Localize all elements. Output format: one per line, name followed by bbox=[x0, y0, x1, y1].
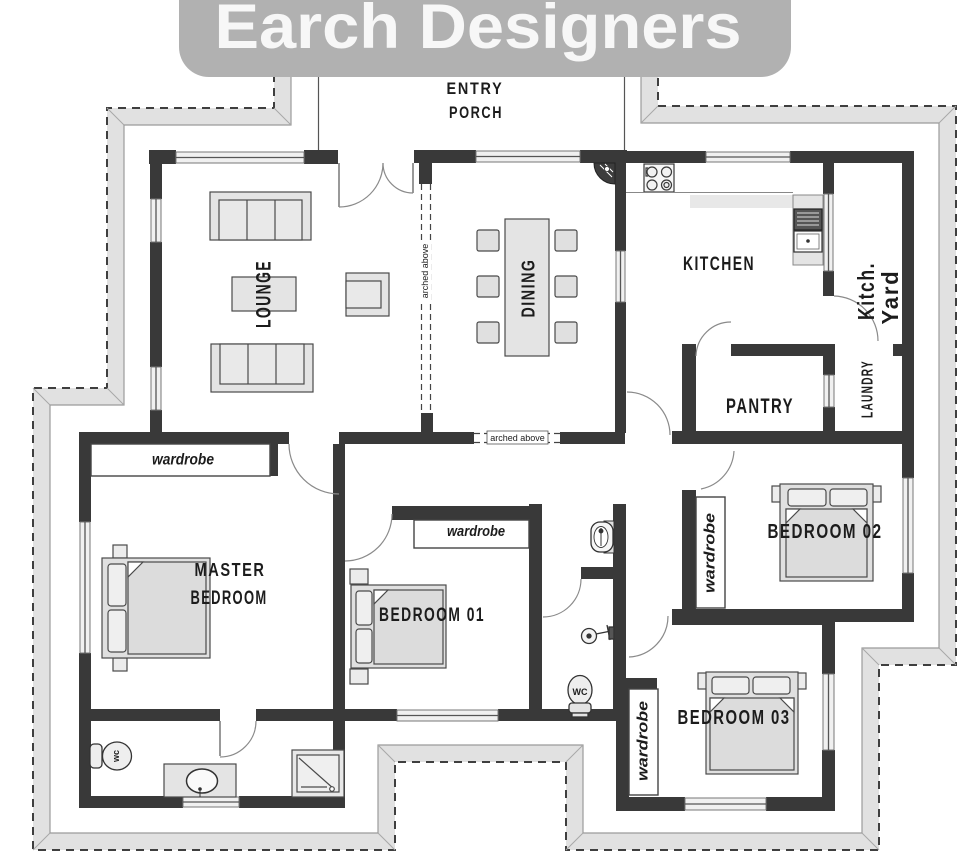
svg-text:Yard: Yard bbox=[877, 270, 903, 325]
svg-text:BEDROOM 02: BEDROOM 02 bbox=[768, 520, 883, 543]
svg-text:Earch Designers: Earch Designers bbox=[215, 0, 742, 62]
svg-text:DINING: DINING bbox=[518, 259, 539, 318]
svg-text:Kitch.: Kitch. bbox=[853, 262, 879, 320]
svg-text:BEDROOM: BEDROOM bbox=[191, 587, 268, 609]
svg-text:KITCHEN: KITCHEN bbox=[683, 253, 755, 275]
svg-text:wardrobe: wardrobe bbox=[447, 524, 505, 540]
svg-text:arched above: arched above bbox=[490, 433, 545, 443]
svg-text:PANTRY: PANTRY bbox=[726, 395, 794, 418]
svg-text:wardrobe: wardrobe bbox=[702, 513, 719, 593]
svg-text:wardrobe: wardrobe bbox=[635, 701, 652, 781]
svg-text:arched above: arched above bbox=[420, 244, 430, 299]
svg-text:wardrobe: wardrobe bbox=[152, 452, 214, 469]
svg-text:PORCH: PORCH bbox=[449, 104, 503, 122]
svg-text:wc: wc bbox=[111, 750, 121, 763]
svg-text:LOUNGE: LOUNGE bbox=[253, 260, 276, 328]
svg-text:MASTER: MASTER bbox=[195, 559, 266, 580]
svg-text:ENTRY: ENTRY bbox=[447, 80, 504, 98]
svg-text:LAUNDRY: LAUNDRY bbox=[860, 360, 877, 418]
svg-text:BEDROOM 01: BEDROOM 01 bbox=[379, 605, 485, 626]
svg-text:WC: WC bbox=[573, 687, 588, 697]
svg-text:BEDROOM 03: BEDROOM 03 bbox=[678, 706, 791, 729]
